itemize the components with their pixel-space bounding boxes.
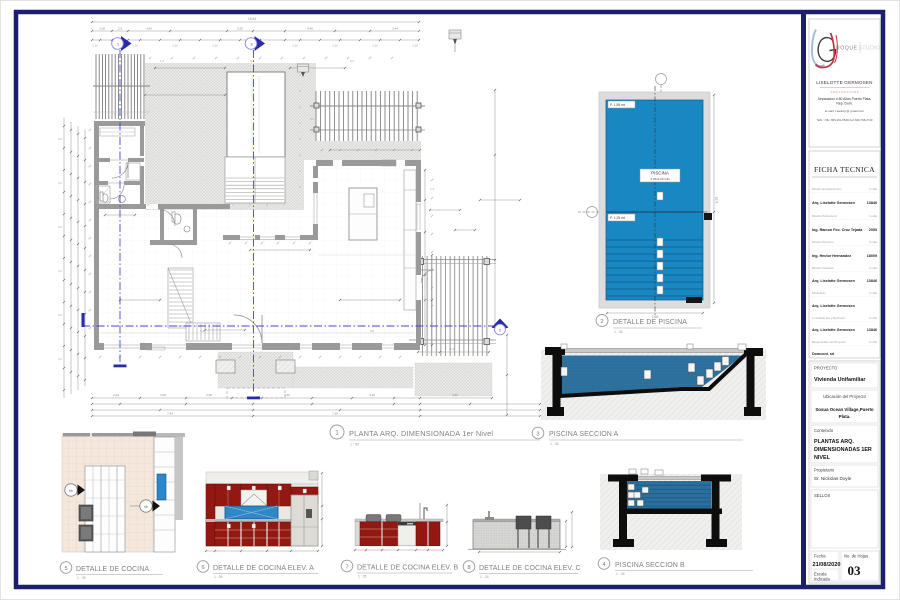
svg-text:1 : 35: 1 : 35: [358, 575, 367, 579]
svg-text:Arq. Liselotte Germosen: Arq. Liselotte Germosen: [812, 201, 856, 205]
svg-text:Codia: Codia: [869, 214, 877, 218]
svg-text:7,60: 7,60: [332, 412, 338, 416]
svg-text:1 : 35: 1 : 35: [616, 572, 625, 576]
svg-text:Ing. Hector Hernandez: Ing. Hector Hernandez: [812, 254, 851, 258]
svg-text:1,10: 1,10: [332, 44, 338, 48]
svg-text:Arq. Liselotte Germosen: Arq. Liselotte Germosen: [812, 328, 856, 332]
svg-text:P. 1,55 mt: P. 1,55 mt: [610, 103, 625, 107]
svg-text:4,40: 4,40: [307, 27, 313, 31]
svg-text:4,40: 4,40: [146, 27, 152, 31]
svg-text:PISCINA: PISCINA: [651, 171, 669, 176]
svg-text:03: 03: [848, 563, 862, 578]
svg-text:Ing. Ramon Fco. Cruz Tejada: Ing. Ramon Fco. Cruz Tejada: [812, 228, 863, 232]
svg-text:Codia: Codia: [869, 340, 877, 344]
svg-text:2,44: 2,44: [392, 27, 398, 31]
svg-text:1 : 50: 1 : 50: [350, 443, 359, 447]
svg-text:3,00: 3,00: [160, 393, 166, 397]
svg-text:Vivienda Unifamiliar: Vivienda Unifamiliar: [814, 377, 866, 383]
svg-text:Codia: Codia: [869, 187, 877, 191]
svg-text:Domconl. srl: Domconl. srl: [812, 352, 834, 356]
svg-text:4: 4: [602, 562, 605, 568]
svg-text:Sosua Ocean Village,Puerto: Sosua Ocean Village,Puerto: [815, 407, 874, 412]
svg-text:Indicada: Indicada: [814, 577, 831, 582]
svg-text:Rep. Dom.: Rep. Dom.: [836, 102, 852, 106]
svg-text:Propietario: Propietario: [814, 468, 835, 473]
svg-text:Diseño Estructural: Diseño Estructural: [812, 214, 837, 218]
svg-text:1,10: 1,10: [372, 44, 378, 48]
svg-text:Diseño Sanitario: Diseño Sanitario: [812, 266, 834, 270]
svg-text:Sr. Nickolas Doyle: Sr. Nickolas Doyle: [814, 476, 852, 481]
svg-text:1,0: 1,0: [58, 137, 62, 141]
svg-text:Arq. Liselotte Germosen: Arq. Liselotte Germosen: [812, 279, 856, 283]
svg-text:2,94: 2,94: [113, 393, 119, 397]
svg-text:2,8: 2,8: [370, 329, 374, 333]
svg-text:Ubicación del Proyecto: Ubicación del Proyecto: [823, 394, 866, 399]
svg-text:ROQUE: ROQUE: [836, 46, 858, 52]
svg-text:Contenido: Contenido: [814, 428, 834, 433]
svg-text:1,2: 1,2: [160, 59, 164, 63]
svg-text:DETALLE DE PISCINA: DETALLE DE PISCINA: [613, 319, 687, 326]
svg-text:3: 3: [536, 432, 539, 438]
svg-text:1,0: 1,0: [58, 357, 62, 361]
svg-text:1 : 35: 1 : 35: [214, 575, 223, 579]
svg-text:1,10: 1,10: [292, 44, 298, 48]
svg-text:E-mail: Liselotg @ gmail.com: E-mail: Liselotg @ gmail.com: [825, 109, 864, 113]
svg-text:2: 2: [600, 319, 603, 325]
svg-text:1 : 35: 1 : 35: [550, 442, 559, 446]
svg-text:Codia: Codia: [869, 240, 877, 244]
svg-text:4,60: 4,60: [452, 393, 458, 397]
svg-text:6b: 6b: [69, 489, 73, 493]
svg-text:4,75: 4,75: [715, 197, 719, 204]
svg-text:2053: 2053: [869, 228, 877, 232]
svg-text:DETALLE DE COCINA ELEV. B: DETALLE DE COCINA ELEV. B: [357, 565, 459, 572]
svg-text:LISELOTTE GERMOSEN: LISELOTTE GERMOSEN: [816, 80, 872, 85]
svg-text:Codia: Codia: [869, 316, 877, 320]
svg-text:DETALLE DE COCINA ELEV. A: DETALLE DE COCINA ELEV. A: [213, 565, 314, 572]
svg-text:FICHA TECNICA: FICHA TECNICA: [814, 165, 875, 174]
svg-text:13846: 13846: [867, 328, 877, 332]
svg-text:Coordinacion y Revision: Coordinacion y Revision: [812, 316, 845, 320]
svg-text:Responsable del Proyecto: Responsable del Proyecto: [812, 340, 846, 344]
svg-text:Codia: Codia: [869, 291, 877, 295]
svg-text:Plata.: Plata.: [839, 414, 851, 419]
svg-text:21/08/2020: 21/08/2020: [813, 562, 841, 568]
svg-text:SELLOS: SELLOS: [814, 493, 831, 498]
svg-text:13846: 13846: [867, 201, 877, 205]
svg-text:PROYECTO: PROYECTO: [814, 366, 838, 371]
svg-text:2,90: 2,90: [206, 393, 212, 397]
svg-text:Telfs : Ofic. 809-261-5539 Cel: Telfs : Ofic. 809-261-5539 Cel: 829-768-…: [817, 118, 873, 122]
svg-text:1,10: 1,10: [212, 44, 218, 48]
svg-text:1 : 35: 1 : 35: [77, 576, 86, 580]
svg-text:Separacion # 80 Altos Puerto P: Separacion # 80 Altos Puerto Plata,: [818, 97, 872, 101]
svg-text:5: 5: [64, 566, 67, 572]
svg-text:1,10: 1,10: [412, 44, 418, 48]
svg-text:2,65: 2,65: [237, 27, 243, 31]
svg-text:A R Q U I T E C T U R A: A R Q U I T E C T U R A: [831, 90, 859, 94]
svg-text:6: 6: [201, 565, 204, 571]
svg-text:18009: 18009: [867, 254, 877, 258]
svg-text:6b: 6b: [144, 505, 148, 509]
svg-text:7: 7: [345, 565, 348, 571]
svg-text:Fecha: Fecha: [814, 554, 826, 559]
svg-text:1,0: 1,0: [58, 313, 62, 317]
svg-text:2,0: 2,0: [95, 247, 99, 251]
svg-text:1,0: 1,0: [58, 269, 62, 273]
svg-text:PISCINA SECCION B: PISCINA SECCION B: [615, 562, 685, 569]
svg-text:DETALLE DE COCINA ELEV. C: DETALLE DE COCINA ELEV. C: [479, 565, 581, 572]
svg-text:1,9: 1,9: [450, 347, 454, 351]
svg-text:No. de Hojas: No. de Hojas: [844, 554, 868, 559]
svg-text:8: 8: [467, 565, 470, 571]
svg-text:2,2: 2,2: [350, 59, 354, 63]
svg-text:2,3: 2,3: [118, 27, 123, 31]
svg-text:6.05x2.60 Glls: 6.05x2.60 Glls: [650, 177, 670, 181]
svg-text:13846: 13846: [867, 279, 877, 283]
svg-text:PLANTAS ARQ.: PLANTAS ARQ.: [814, 439, 854, 445]
svg-text:PISCINA SECCION A: PISCINA SECCION A: [549, 431, 619, 438]
svg-text:STUDIO: STUDIO: [859, 46, 881, 52]
svg-text:7,44: 7,44: [167, 412, 173, 416]
svg-text:Codia: Codia: [869, 266, 877, 270]
svg-text:DETALLE DE COCINA: DETALLE DE COCINA: [76, 566, 149, 573]
svg-text:1,08: 1,08: [99, 27, 105, 31]
svg-text:NIVEL: NIVEL: [814, 455, 831, 461]
svg-text:DIMENSIONADAS 1ER: DIMENSIONADAS 1ER: [814, 447, 872, 453]
svg-text:19,44: 19,44: [248, 17, 256, 21]
svg-text:PLANTA ARQ. DIMENSIONADA 1er N: PLANTA ARQ. DIMENSIONADA 1er Nivel: [349, 429, 493, 438]
svg-text:Diseño Arquitectonico: Diseño Arquitectonico: [812, 187, 842, 191]
svg-text:3,3: 3,3: [200, 329, 204, 333]
svg-text:1 : 35: 1 : 35: [480, 575, 489, 579]
svg-text:1,10: 1,10: [132, 44, 138, 48]
svg-text:1,0: 1,0: [58, 225, 62, 229]
svg-text:1,10: 1,10: [92, 44, 98, 48]
svg-text:Diseño Electrico: Diseño Electrico: [812, 240, 834, 244]
svg-text:3,10: 3,10: [369, 393, 375, 397]
svg-text:1 : 35: 1 : 35: [614, 330, 623, 334]
svg-text:1,4: 1,4: [430, 187, 434, 191]
svg-text:4,1: 4,1: [310, 117, 314, 121]
svg-text:P. 1,25 mt: P. 1,25 mt: [610, 216, 625, 220]
svg-text:1,10: 1,10: [172, 44, 178, 48]
svg-text:1,0: 1,0: [58, 181, 62, 185]
svg-text:Modelado: Modelado: [812, 291, 826, 295]
svg-text:Arq. Liselotte Germosen: Arq. Liselotte Germosen: [812, 304, 856, 308]
